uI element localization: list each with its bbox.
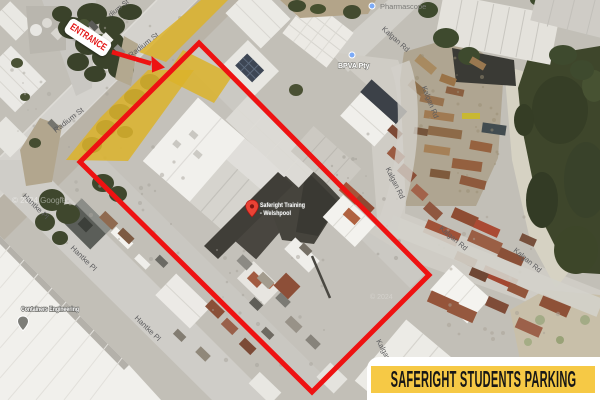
svg-text:© 2024 Google: © 2024 Google <box>12 196 66 205</box>
svg-text:Pharmascope: Pharmascope <box>380 2 426 11</box>
svg-text:- Welshpool: - Welshpool <box>260 210 291 217</box>
svg-text:Saferight Training: Saferight Training <box>260 202 305 209</box>
svg-text:© 2024: © 2024 <box>370 293 393 301</box>
svg-text:BPVA Pty: BPVA Pty <box>338 63 370 70</box>
svg-text:Containers Engineering: Containers Engineering <box>21 306 79 313</box>
